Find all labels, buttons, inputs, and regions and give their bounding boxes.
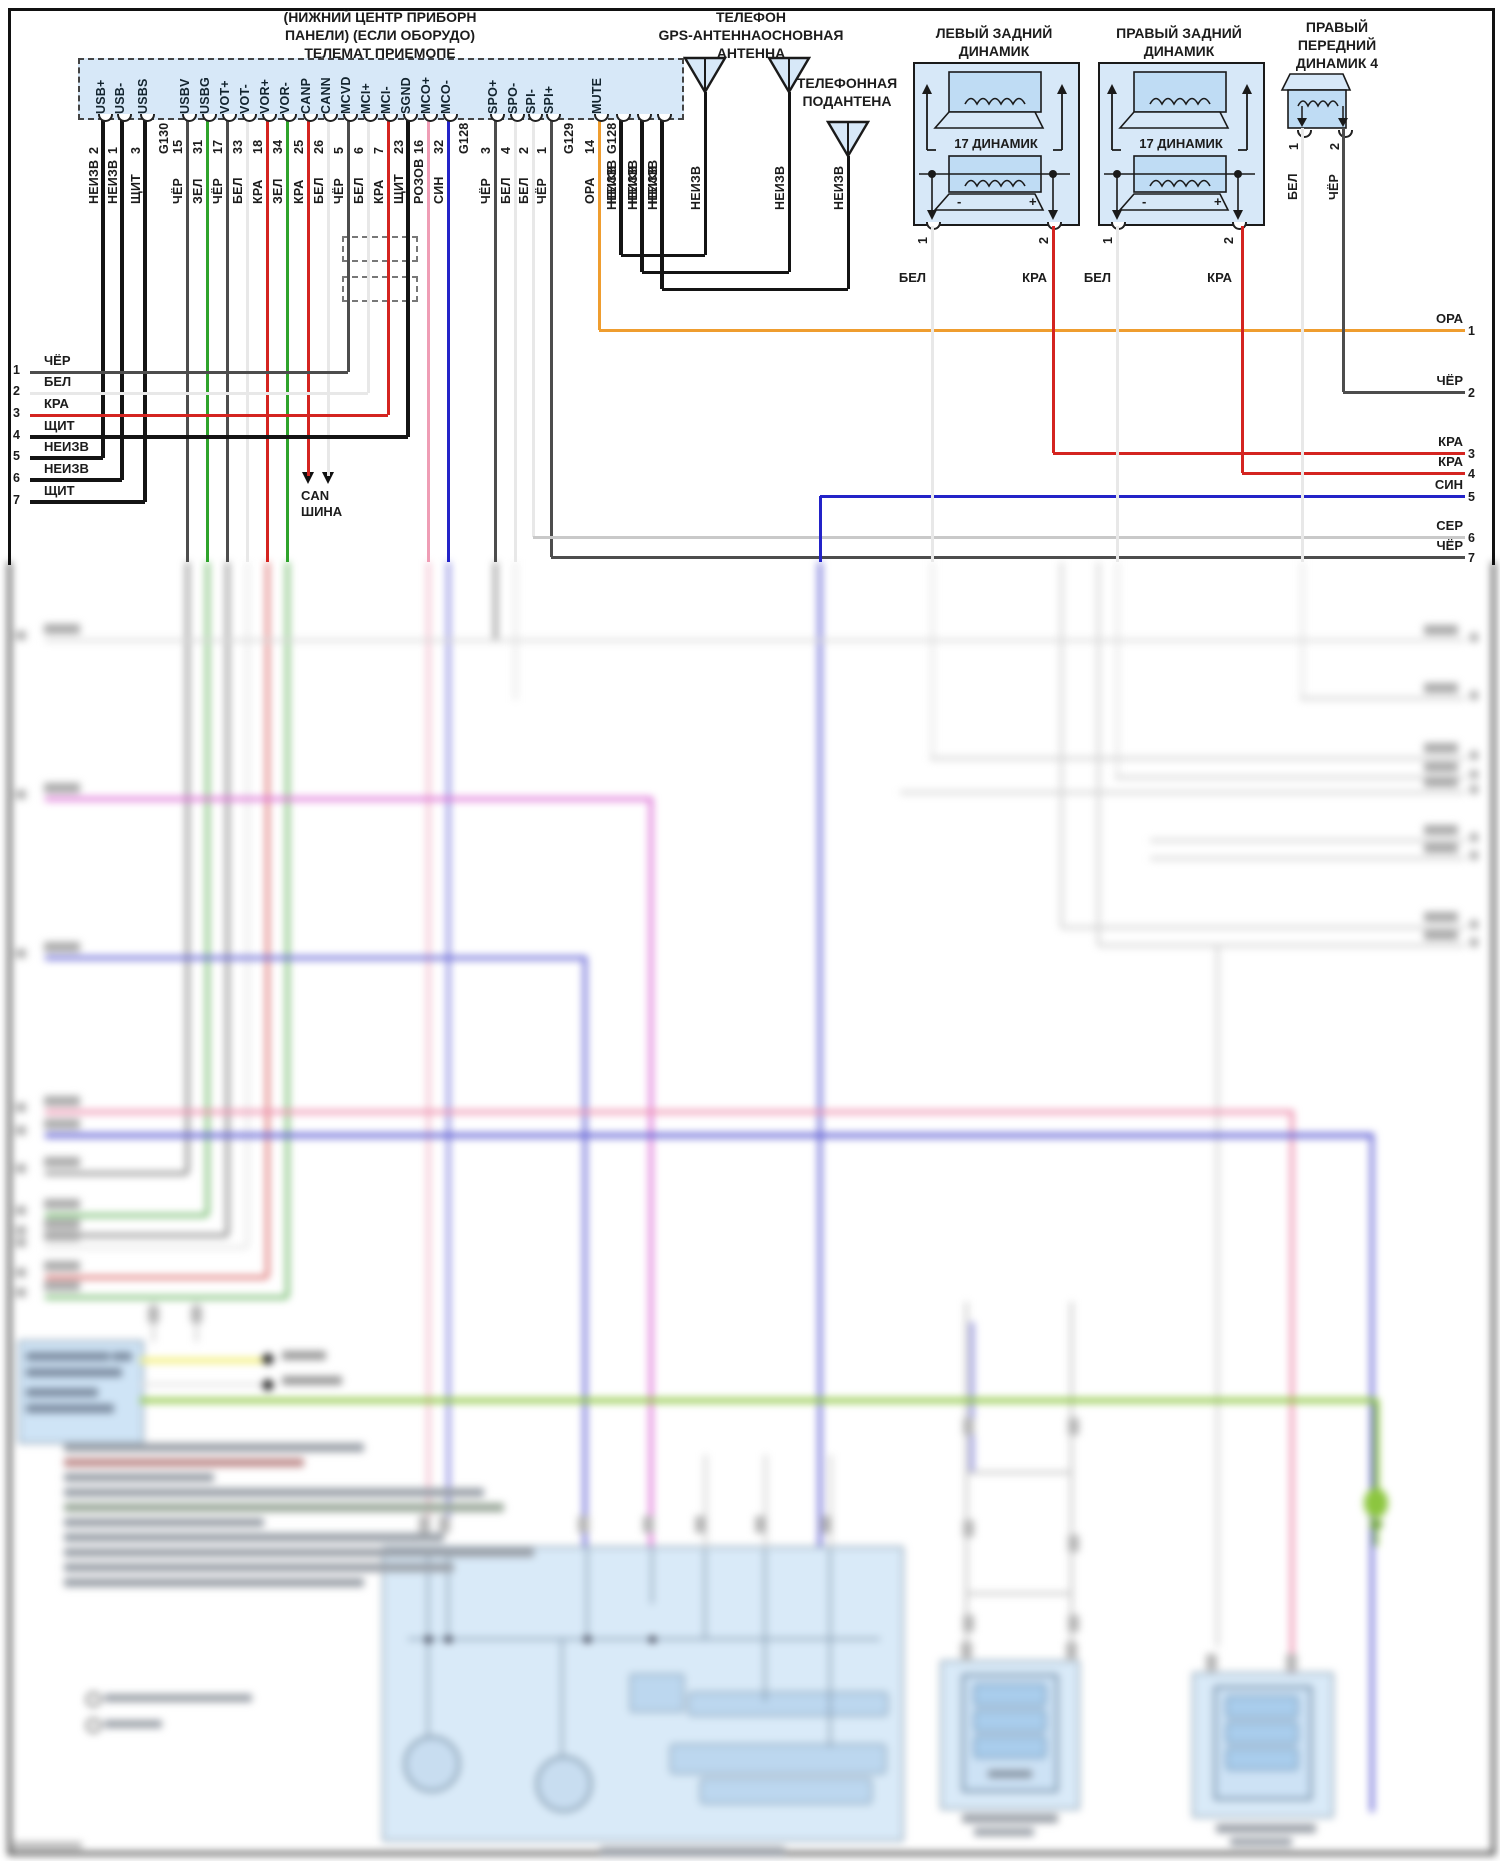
speaker-unit-label: 17 ДИНАМИК <box>941 136 1051 151</box>
speaker-minus-label: - <box>1142 194 1146 209</box>
blurred-shape <box>1470 938 1478 947</box>
wire-segment <box>1241 226 1244 473</box>
blurred-shape <box>64 1548 534 1557</box>
blurred-shape <box>64 1533 444 1542</box>
wire-segment <box>30 500 145 504</box>
wire-color-label: НЕИЗВ <box>106 156 122 204</box>
blurred-shape <box>1370 1520 1382 1528</box>
wire-segment <box>1301 562 1304 700</box>
row-number: 3 <box>13 406 20 420</box>
wire-color-label: НЕИЗВ <box>646 158 662 210</box>
wire-segment <box>642 271 789 274</box>
blurred-shape <box>16 1238 26 1247</box>
blurred-shape <box>16 949 26 958</box>
wire-segment <box>30 371 348 374</box>
wire-segment <box>1070 1302 1073 1662</box>
wire-segment <box>764 1455 767 1548</box>
pin-number: G129 <box>562 120 578 154</box>
blurred-shape <box>282 1376 342 1385</box>
pin-number: 31 <box>191 120 207 154</box>
wire-color-label: ЩИТ <box>44 418 75 433</box>
pin-number: 2 <box>87 120 103 154</box>
main-antenna-icon <box>767 56 811 96</box>
blurred-shape <box>104 1720 162 1728</box>
blurred-shape <box>1470 851 1478 860</box>
wire-segment <box>1150 857 1465 860</box>
blurred-shape <box>1424 743 1458 753</box>
wire-color-label: ЩИТ <box>44 483 75 498</box>
pin-label: MCO+ <box>419 64 435 114</box>
pin-number: 18 <box>251 120 267 154</box>
blurred-shape <box>1470 833 1478 842</box>
wire-segment <box>427 1639 429 1738</box>
wire-segment <box>599 329 1465 332</box>
wire-color-label: НЕИЗВ <box>44 461 89 476</box>
pin-label: MCVD <box>339 64 355 114</box>
wire-color-label: НЕИЗВ <box>87 156 103 204</box>
blurred-shape <box>963 1615 974 1632</box>
blurred-shape <box>1470 920 1478 929</box>
wire-segment <box>286 562 289 1297</box>
wire-color-label: ЩИТ <box>392 156 408 204</box>
wire-segment <box>30 456 103 460</box>
pin-number: 26 <box>312 120 328 154</box>
blurred-shape <box>44 1157 80 1167</box>
wire-color-label: ЗЕЛ <box>271 156 287 204</box>
blurred-shape <box>64 1488 484 1497</box>
wire-color-label: НЕИЗВ <box>605 158 621 210</box>
wire-segment <box>651 1548 653 1604</box>
blurred-shape <box>44 1281 80 1291</box>
blurred-shape <box>630 1674 684 1712</box>
blurred-shape <box>1470 770 1478 779</box>
wire-color-label: ЧЁР <box>171 156 187 204</box>
wire-segment <box>186 562 189 1173</box>
wire-segment <box>966 1471 1071 1474</box>
wire-segment <box>930 757 1465 760</box>
blurred-shape <box>688 1692 888 1716</box>
blurred-shape <box>700 1778 872 1804</box>
wire-color-label: ЗЕЛ <box>191 156 207 204</box>
blurred-shape <box>1230 1838 1292 1846</box>
phone-sub-antenna-icon <box>826 120 870 160</box>
blurred-shape <box>600 1847 785 1857</box>
wire-segment <box>551 556 1465 559</box>
blurred-shape <box>755 1516 766 1533</box>
wire-segment <box>1115 776 1465 779</box>
blurred-shape <box>1470 785 1478 794</box>
wire-segment <box>45 1214 207 1217</box>
wire-color-label: БЕЛ <box>888 270 926 285</box>
blurred-shape <box>1068 1615 1079 1632</box>
speaker-title-line: ДИНАМИК <box>1093 42 1265 60</box>
wire-segment <box>819 496 822 562</box>
blurred-shape <box>974 1684 1046 1706</box>
blurred-shape <box>44 783 80 793</box>
blurred-shape <box>1424 825 1458 835</box>
wire-segment <box>30 478 122 482</box>
blurred-shape <box>44 1199 80 1209</box>
blurred-shape <box>1226 1696 1298 1718</box>
wire-segment <box>1150 839 1465 842</box>
wire-segment <box>966 1592 1071 1595</box>
wire-segment <box>704 92 707 255</box>
blurred-shape <box>86 1718 101 1733</box>
blurred-shape <box>643 1516 654 1533</box>
row-number: 2 <box>1468 386 1475 400</box>
front-speaker-symbol <box>1280 70 1354 132</box>
blurred-shape <box>64 1473 214 1482</box>
wire-color-label: ОРА <box>1393 311 1463 326</box>
blurred-shape <box>26 1388 98 1397</box>
blurred-shape <box>16 631 26 640</box>
pin-number: 7 <box>372 120 388 154</box>
wire-segment <box>764 1548 766 1702</box>
antenna-group-title: ТЕЛЕФОН GPS-АНТЕННАОСНОВНАЯ АНТЕННА <box>620 8 882 62</box>
wire-segment <box>45 1133 1374 1138</box>
wire-color-label: БЕЛ <box>517 156 533 204</box>
pin-label: MCI+ <box>359 64 375 114</box>
wire-segment <box>533 536 1465 539</box>
wire-segment <box>704 1455 707 1548</box>
pin-label: SPO- <box>506 64 522 114</box>
row-number: 5 <box>13 449 20 463</box>
wire-color-label: БЕЛ <box>352 156 368 204</box>
wire-segment <box>45 1110 1294 1114</box>
blurred-shape <box>26 1404 114 1413</box>
blurred-shape <box>26 1368 122 1377</box>
left-rear-speaker-box: 17 ДИНАМИК - + <box>913 62 1080 226</box>
wire-color-label: ЩИТ <box>129 156 145 204</box>
right-rear-speaker-box: 17 ДИНАМИК - + <box>1098 62 1265 226</box>
front-right-speaker-title: ПРАВЫЙ ПЕРЕДНИЙ ДИНАМИК 4 <box>1271 18 1403 72</box>
blurred-shape <box>44 1096 80 1106</box>
wire-segment <box>1098 944 1465 947</box>
blurred-shape <box>1286 1654 1297 1671</box>
row-number: 5 <box>1468 490 1475 504</box>
blurred-shape <box>1424 912 1458 922</box>
wire-segment <box>514 562 517 700</box>
blurred-shape <box>191 1306 202 1323</box>
blurred-shape <box>44 942 80 952</box>
blurred-shape <box>974 1710 1046 1732</box>
row-number: 7 <box>13 493 20 507</box>
pin-label: USBS <box>136 64 152 114</box>
wire-segment <box>1342 128 1345 392</box>
wire-segment <box>583 958 587 1546</box>
wire-segment <box>140 1358 270 1363</box>
pin-label: CANN <box>319 64 335 114</box>
blurred-shape <box>44 1261 80 1271</box>
wire-segment <box>45 1296 287 1299</box>
blurred-shape <box>148 1306 159 1323</box>
pin-label: SPO+ <box>486 64 502 114</box>
wire-color-label: КРА <box>292 156 308 204</box>
blurred-shape <box>64 1458 304 1467</box>
row-number: 6 <box>13 471 20 485</box>
wire-segment <box>266 562 269 1277</box>
blurred-shape <box>1424 625 1458 635</box>
wire-color-label: ЧЁР <box>479 156 495 204</box>
pin-number: 4 <box>499 120 515 154</box>
pin-label: MCI- <box>379 64 395 114</box>
blurred-shape <box>961 1642 972 1659</box>
pin-label: USBG <box>198 64 214 114</box>
blurred-shape <box>974 1828 1034 1836</box>
pin-number: 33 <box>231 120 247 154</box>
blurred-shape <box>64 1518 264 1527</box>
blurred-shape <box>1364 1488 1388 1518</box>
blurred-shape <box>821 1516 832 1533</box>
pin-number: 15 <box>171 120 187 154</box>
blurred-shape <box>1470 633 1478 642</box>
blurred-shape <box>16 1288 26 1297</box>
pin-number: 16 <box>412 120 428 154</box>
blurred-shape <box>1424 843 1458 853</box>
speaker-title-line: ПРАВЫЙ ЗАДНИЙ <box>1093 24 1265 42</box>
wire-segment <box>1374 1400 1379 1497</box>
pin-label: USBV <box>178 64 194 114</box>
blurred-shape <box>962 1814 1058 1823</box>
wire-color-label: РОЗОВ <box>412 156 428 204</box>
blurred-shape <box>64 1578 364 1587</box>
wire-color-label: ЧЁР <box>1393 538 1463 553</box>
left-rear-speaker-title: ЛЕВЫЙ ЗАДНИЙ ДИНАМИК <box>908 24 1080 60</box>
wire-segment <box>1301 128 1304 562</box>
blurred-shape <box>16 1226 26 1235</box>
blurred-shape <box>64 1563 454 1572</box>
speaker-unit-label: 17 ДИНАМИК <box>1126 136 1236 151</box>
blurred-shape <box>439 1516 450 1533</box>
wire-color-label: НЕИЗВ <box>44 439 89 454</box>
pin-label: USB- <box>113 64 129 114</box>
wire-color-label: ЧЁР <box>535 156 551 204</box>
wire-segment <box>561 1639 563 1758</box>
telemat-title-line: (НИЖНИЙ ЦЕНТР ПРИБОРН <box>178 8 582 26</box>
speaker-title-line: ПРАВЫЙ <box>1271 18 1403 36</box>
blurred-shape <box>282 1351 326 1360</box>
wire-segment <box>704 1548 706 1639</box>
wire-color-label: КРА <box>1393 434 1463 449</box>
telemat-title: (НИЖНИЙ ЦЕНТР ПРИБОРН ПАНЕЛИ) (ЕСЛИ ОБОР… <box>178 8 582 62</box>
wire-color-label: СЕР <box>1393 518 1463 533</box>
blurred-shape <box>974 1736 1046 1758</box>
blurred-shape <box>419 1516 430 1533</box>
wire-segment <box>965 1302 968 1662</box>
blurred-lower-diagram <box>0 562 1500 1861</box>
wire-segment <box>447 562 450 1522</box>
blurred-shape <box>16 1206 26 1215</box>
pin-number: 34 <box>271 120 287 154</box>
blurred-shape <box>10 1842 82 1849</box>
wire-segment <box>427 562 430 1522</box>
wire-segment <box>829 1455 832 1548</box>
blurred-shape <box>86 1692 101 1707</box>
blurred-shape <box>425 1636 432 1643</box>
wire-segment <box>140 1398 1378 1403</box>
pin-label: VOR+ <box>258 64 274 114</box>
wiring-diagram-page: (НИЖНИЙ ЦЕНТР ПРИБОРН ПАНЕЛИ) (ЕСЛИ ОБОР… <box>0 0 1500 1861</box>
pin-number: G128 <box>605 120 621 154</box>
blurred-shape <box>1206 1654 1217 1671</box>
can-bus-label: ШИНА <box>301 504 342 519</box>
blurred-shape <box>16 1268 26 1277</box>
wire-segment <box>45 1172 187 1175</box>
row-number: 6 <box>1468 531 1475 545</box>
wire-segment <box>494 562 497 642</box>
wire-segment <box>1097 562 1100 945</box>
blurred-shape <box>1068 1535 1079 1552</box>
blurred-shape <box>26 1352 110 1361</box>
blurred-shape <box>1424 777 1458 787</box>
speaker-minus-label: - <box>957 194 961 209</box>
blurred-shape <box>64 1503 504 1512</box>
telemat-title-line: ПАНЕЛИ) (ЕСЛИ ОБОРУДО) <box>178 26 582 44</box>
wire-color-label: ЧЁР <box>1393 373 1463 388</box>
blurred-shape <box>1424 683 1458 693</box>
wire-color-label: ОРА <box>583 156 599 204</box>
wire-color-label: БЕЛ <box>1073 270 1111 285</box>
wire-segment <box>931 562 934 758</box>
pin-label: USB+ <box>94 64 110 114</box>
row-number: 7 <box>1468 551 1475 565</box>
wire-color-label: БЕЛ <box>499 156 515 204</box>
wire-color-label: ЧЁР <box>332 156 348 204</box>
wire-segment <box>427 1548 429 1639</box>
wire-segment <box>820 495 1465 498</box>
pin-label: VOR- <box>278 64 294 114</box>
wire-segment <box>662 288 848 291</box>
wire-color-label: КРА <box>44 396 69 411</box>
blurred-shape <box>44 624 80 634</box>
pin-number: 17 <box>211 120 227 154</box>
pin-label: VOT+ <box>218 64 234 114</box>
antenna-title-line: ТЕЛЕФОН <box>620 8 882 26</box>
wire-segment <box>1061 926 1465 929</box>
blurred-shape <box>988 1770 1032 1778</box>
blurred-shape <box>963 1418 974 1435</box>
terminal-number: 2 <box>1222 226 1238 244</box>
wire-color-label: КРА <box>1194 270 1232 285</box>
blurred-shape <box>16 1103 26 1112</box>
pin-number: 1 <box>106 120 122 154</box>
pin-number: 32 <box>432 120 448 154</box>
can-bus-label: CAN <box>301 488 329 503</box>
wire-segment <box>1060 562 1063 927</box>
blurred-shape <box>963 1520 974 1537</box>
blurred-shape <box>44 1231 80 1241</box>
blurred-shape <box>44 1219 80 1229</box>
row-number: 1 <box>1468 324 1475 338</box>
row-number: 1 <box>13 363 20 377</box>
right-rear-speaker-title: ПРАВЫЙ ЗАДНИЙ ДИНАМИК <box>1093 24 1265 60</box>
wire-color-label: НЕИЗВ <box>626 158 642 210</box>
wire-segment <box>30 414 388 417</box>
blurred-shape <box>44 1119 80 1129</box>
blurred-shape <box>445 1636 452 1643</box>
wire-segment <box>45 797 653 801</box>
wire-segment <box>847 156 850 289</box>
wire-segment <box>1116 562 1119 777</box>
wire-segment <box>246 562 249 1247</box>
blurred-shape <box>1068 1418 1079 1435</box>
wire-segment <box>1242 472 1465 475</box>
pin-number: G128 <box>457 120 473 154</box>
pin-number: 3 <box>129 120 145 154</box>
row-number: 2 <box>13 384 20 398</box>
pin-number: 25 <box>292 120 308 154</box>
wire-segment <box>931 226 934 562</box>
blurred-shape <box>670 1744 886 1774</box>
wire-segment <box>1343 391 1465 394</box>
pin-label: SPI+ <box>542 64 558 114</box>
wire-color-label: КРА <box>372 156 388 204</box>
blurred-shape <box>404 1736 460 1792</box>
wire-segment <box>1116 226 1119 562</box>
wire-color-label: КРА <box>251 156 267 204</box>
wire-segment <box>829 1548 831 1747</box>
wire-segment <box>30 392 368 395</box>
wire-segment <box>788 92 791 272</box>
pin-label: MCO- <box>439 64 455 114</box>
blurred-shape <box>1216 1824 1316 1833</box>
wire-segment <box>45 956 587 960</box>
wire-color-label: СИН <box>1393 477 1463 492</box>
wire-segment <box>1300 697 1465 700</box>
blurred-shape <box>584 1636 591 1643</box>
wire-segment <box>45 1246 247 1249</box>
pin-number: 23 <box>392 120 408 154</box>
blurred-shape <box>64 1443 364 1452</box>
blurred-shape <box>1066 1642 1077 1659</box>
speaker-title-line: ПЕРЕДНИЙ <box>1271 36 1403 54</box>
blurred-shape <box>649 1636 656 1643</box>
blurred-shape <box>104 1694 252 1702</box>
wire-segment <box>1290 1112 1294 1672</box>
wire-segment <box>45 639 1465 642</box>
wire-segment <box>1216 945 1219 1647</box>
blurred-shape <box>1424 762 1458 772</box>
pin-label: CANP <box>299 64 315 114</box>
blurred-shape <box>1226 1748 1298 1770</box>
wire-color-label: БЕЛ <box>231 156 247 204</box>
blurred-shape <box>1424 930 1458 940</box>
pin-label: MUTE <box>590 64 606 114</box>
blurred-shape <box>1470 691 1478 700</box>
blurred-shape <box>16 1126 26 1135</box>
blurred-shape <box>112 1352 132 1361</box>
pin-number: 2 <box>517 120 533 154</box>
wire-color-label: СИН <box>432 156 448 204</box>
wire-color-label: КРА <box>1393 454 1463 469</box>
wire-segment <box>621 254 705 257</box>
blurred-shape <box>16 1164 26 1173</box>
antenna-title-line: GPS-АНТЕННАОСНОВНАЯ <box>620 26 882 44</box>
blurred-shape <box>695 1516 706 1533</box>
blurred-shape <box>1226 1722 1298 1744</box>
pin-number: 14 <box>583 120 599 154</box>
pin-label: SGND <box>399 64 415 114</box>
antenna-title-line: АНТЕННА <box>620 44 882 62</box>
wire-segment <box>140 1383 270 1386</box>
wire-segment <box>408 1638 880 1640</box>
speaker-plus-label: + <box>1214 194 1222 209</box>
gps-antenna-icon <box>683 56 727 96</box>
wire-color-label: БЕЛ <box>44 374 71 389</box>
wire-segment <box>1052 226 1055 453</box>
row-number: 4 <box>1468 467 1475 481</box>
wire-segment <box>900 791 1465 794</box>
